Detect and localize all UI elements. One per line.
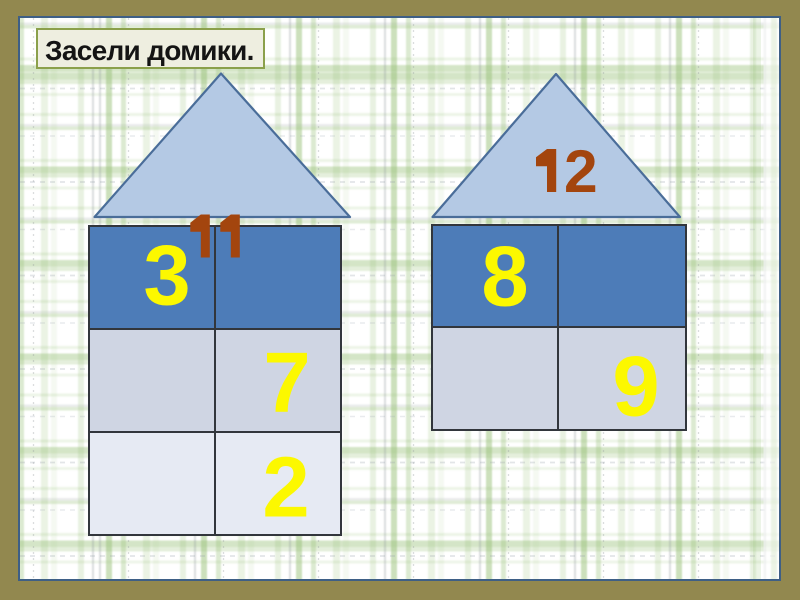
svg-text:2: 2 bbox=[564, 137, 598, 205]
